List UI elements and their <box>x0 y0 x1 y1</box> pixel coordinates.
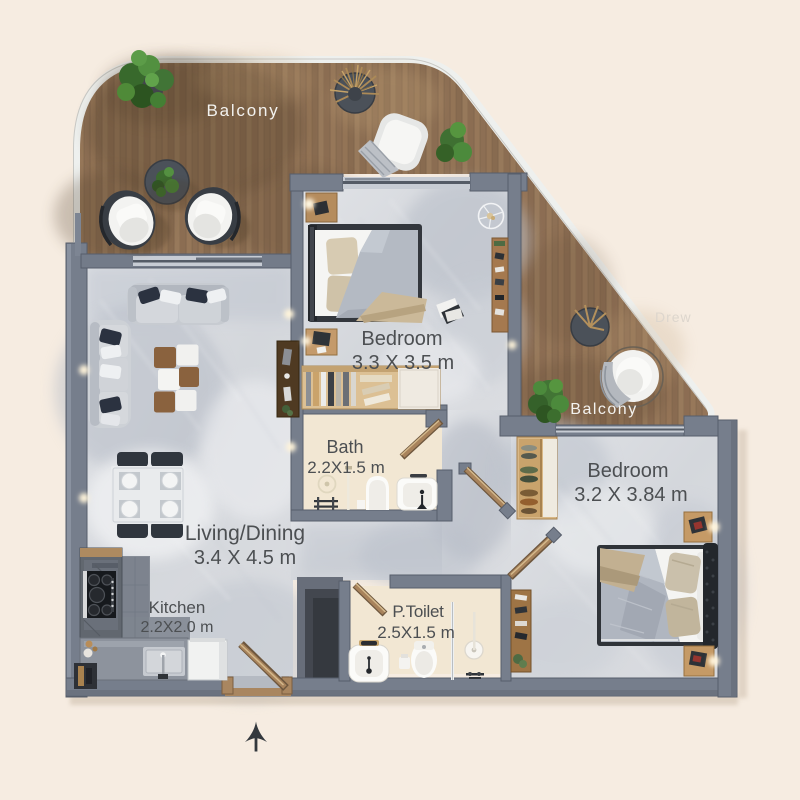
svg-text:2.2X2.0 m: 2.2X2.0 m <box>141 619 214 636</box>
svg-text:3.3 X 3.5 m: 3.3 X 3.5 m <box>352 352 454 374</box>
svg-text:Bedroom: Bedroom <box>587 460 668 482</box>
svg-text:2.2X1.5 m: 2.2X1.5 m <box>307 458 385 477</box>
svg-text:Bath: Bath <box>326 437 363 457</box>
svg-text:Balcony: Balcony <box>570 401 637 418</box>
svg-text:P.Toilet: P.Toilet <box>392 602 444 621</box>
svg-text:Drew: Drew <box>655 309 692 325</box>
svg-text:3.2 X 3.84 m: 3.2 X 3.84 m <box>574 484 687 506</box>
svg-text:Kitchen: Kitchen <box>149 598 206 617</box>
svg-text:Balcony: Balcony <box>206 101 279 120</box>
svg-text:Bedroom: Bedroom <box>361 328 442 350</box>
svg-text:2.5X1.5 m: 2.5X1.5 m <box>377 623 455 642</box>
svg-text:Living/Dining: Living/Dining <box>185 522 305 545</box>
svg-text:3.4 X 4.5 m: 3.4 X 4.5 m <box>194 547 296 569</box>
